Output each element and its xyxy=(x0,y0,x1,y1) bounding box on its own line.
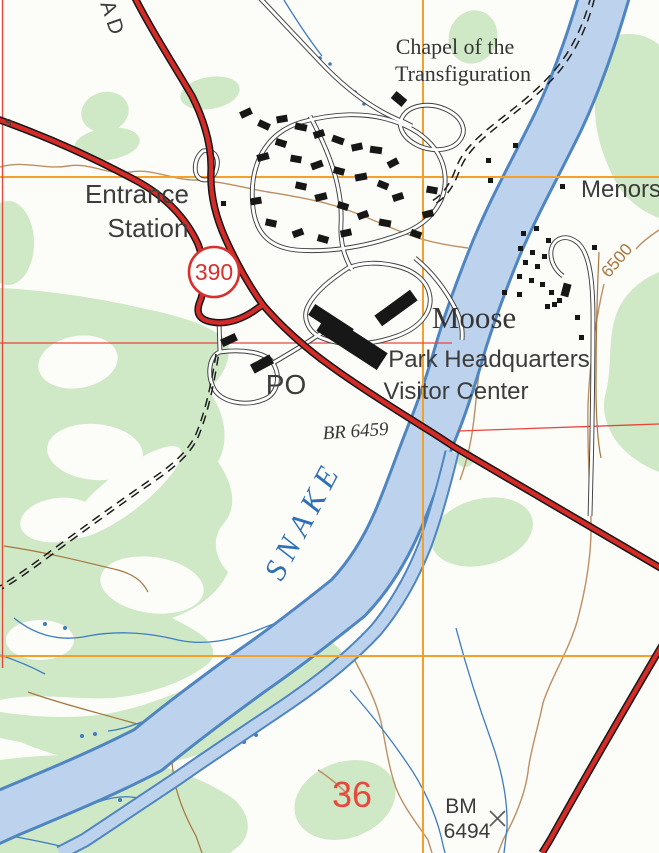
benchmark-label-line2: 6494 xyxy=(444,820,491,843)
entrance-station-label-line2: Station xyxy=(108,213,189,243)
contour-elevation-label: 6500 xyxy=(597,240,636,281)
left-edge-partial-label: s xyxy=(5,114,12,129)
menors-label: Menors xyxy=(581,176,659,203)
section-number-label: 36 xyxy=(332,774,372,815)
chapel-label-line2: Transfiguration xyxy=(395,61,531,86)
benchmark-label-line1: BM xyxy=(445,795,477,818)
post-office-label: PO xyxy=(266,369,306,400)
map-canvas[interactable]: OAD s Entrance Station Chapel of the Tra… xyxy=(0,0,659,853)
moose-label: Moose xyxy=(432,300,516,335)
highway-390-number: 390 xyxy=(195,259,233,285)
road-name-partial-label: OAD xyxy=(88,0,129,42)
chapel-label-line1: Chapel of the xyxy=(396,34,515,59)
topo-map-view[interactable]: OAD s Entrance Station Chapel of the Tra… xyxy=(0,0,659,853)
benchmark-cross xyxy=(490,811,505,826)
entrance-station-label-line1: Entrance xyxy=(85,179,189,209)
snake-river-label: SNAKE xyxy=(257,455,349,586)
park-headquarters-label: Park Headquarters xyxy=(388,346,589,373)
bridge-elevation-label: BR 6459 xyxy=(322,419,390,445)
visitor-center-label: Visitor Center xyxy=(384,378,529,405)
highway-390-shield: 390 xyxy=(189,247,239,297)
